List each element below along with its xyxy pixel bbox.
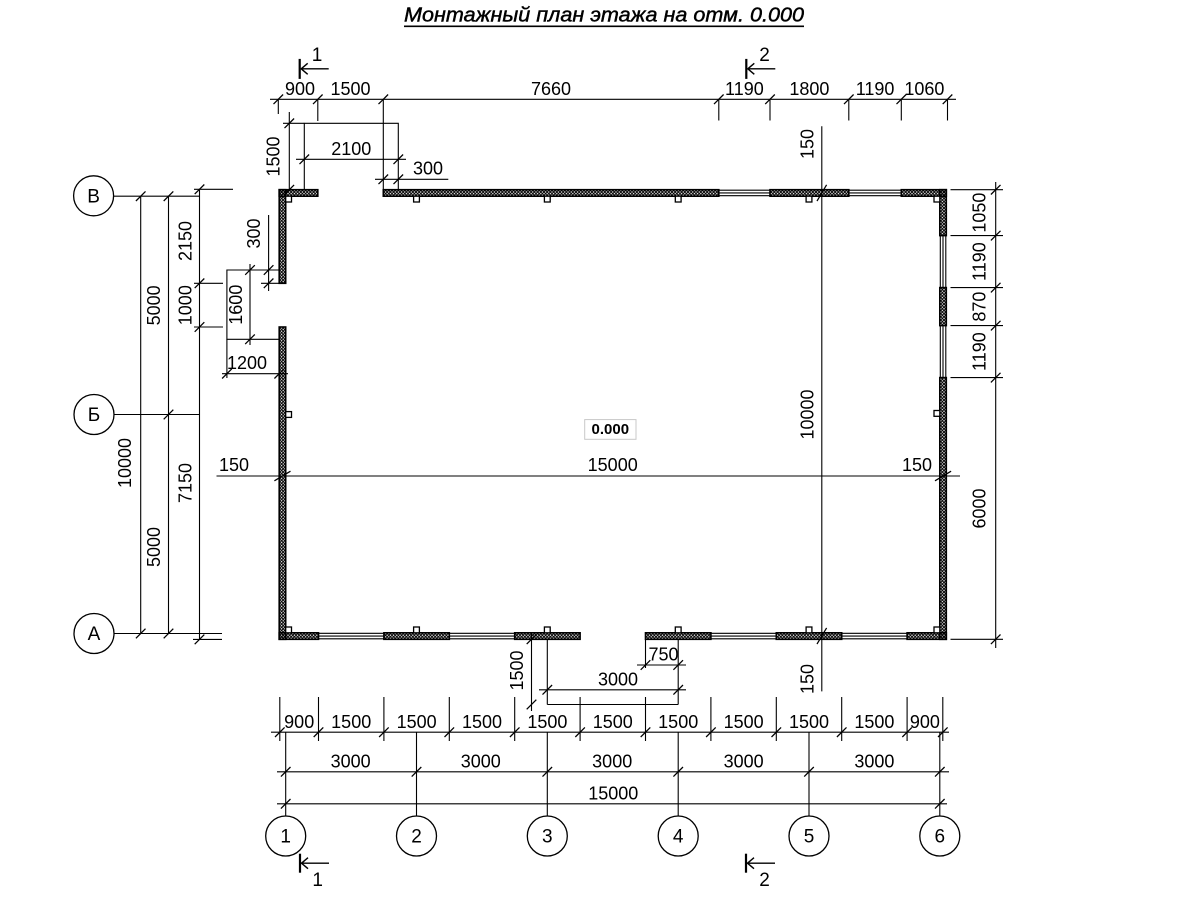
svg-text:150: 150 (219, 455, 249, 475)
svg-text:6: 6 (935, 827, 946, 848)
svg-text:3000: 3000 (598, 669, 638, 689)
svg-text:3000: 3000 (592, 751, 632, 771)
svg-text:1800: 1800 (789, 79, 829, 99)
svg-text:1000: 1000 (176, 285, 196, 325)
svg-text:3000: 3000 (724, 751, 764, 771)
svg-text:1190: 1190 (856, 79, 895, 99)
svg-text:1190: 1190 (970, 242, 990, 281)
svg-text:2: 2 (411, 827, 422, 848)
svg-text:7150: 7150 (176, 463, 196, 503)
svg-text:1500: 1500 (397, 712, 437, 732)
svg-text:1: 1 (312, 870, 323, 891)
svg-text:2: 2 (759, 45, 770, 66)
svg-text:300: 300 (244, 218, 264, 248)
svg-text:1200: 1200 (227, 353, 267, 373)
svg-text:1: 1 (312, 45, 323, 66)
svg-text:870: 870 (970, 292, 990, 322)
svg-text:900: 900 (284, 712, 314, 732)
svg-text:Монтажный план этажа на отм. 0: Монтажный план этажа на отм. 0.000 (404, 4, 805, 27)
svg-text:1600: 1600 (226, 285, 246, 325)
svg-text:1500: 1500 (264, 136, 284, 176)
svg-text:15000: 15000 (588, 783, 638, 803)
svg-text:2150: 2150 (176, 221, 196, 261)
svg-text:4: 4 (673, 827, 684, 848)
svg-text:3000: 3000 (854, 751, 894, 771)
svg-text:15000: 15000 (588, 455, 638, 475)
svg-text:1500: 1500 (507, 650, 527, 690)
svg-text:150: 150 (797, 664, 817, 694)
svg-text:1050: 1050 (970, 193, 990, 233)
svg-text:2100: 2100 (331, 139, 371, 159)
svg-text:1190: 1190 (970, 332, 990, 371)
svg-text:1500: 1500 (462, 712, 502, 732)
svg-text:1500: 1500 (331, 712, 371, 732)
svg-text:3: 3 (542, 827, 553, 848)
svg-text:900: 900 (910, 712, 940, 732)
svg-text:1500: 1500 (527, 712, 567, 732)
svg-text:10000: 10000 (115, 438, 135, 488)
svg-text:3000: 3000 (461, 751, 501, 771)
svg-text:150: 150 (797, 129, 817, 159)
svg-text:В: В (87, 187, 100, 208)
svg-text:1500: 1500 (789, 712, 829, 732)
svg-text:300: 300 (413, 158, 443, 178)
svg-text:5000: 5000 (144, 527, 164, 567)
svg-text:1500: 1500 (854, 712, 894, 732)
svg-text:5000: 5000 (144, 285, 164, 325)
svg-text:900: 900 (285, 79, 315, 99)
svg-text:1500: 1500 (658, 712, 698, 732)
svg-text:1500: 1500 (330, 79, 370, 99)
svg-text:6000: 6000 (970, 488, 990, 528)
svg-text:Б: Б (88, 405, 100, 426)
svg-text:1: 1 (280, 827, 291, 848)
svg-text:А: А (88, 624, 101, 645)
svg-text:7660: 7660 (531, 79, 571, 99)
svg-text:5: 5 (804, 827, 815, 848)
svg-text:1060: 1060 (904, 79, 944, 99)
svg-text:0.000: 0.000 (592, 421, 630, 438)
svg-text:10000: 10000 (797, 389, 817, 439)
svg-text:3000: 3000 (331, 751, 371, 771)
svg-text:1500: 1500 (724, 712, 764, 732)
svg-text:1500: 1500 (593, 712, 633, 732)
svg-text:1190: 1190 (725, 79, 764, 99)
svg-text:150: 150 (902, 455, 932, 475)
svg-text:2: 2 (759, 870, 770, 891)
svg-text:750: 750 (648, 645, 678, 665)
